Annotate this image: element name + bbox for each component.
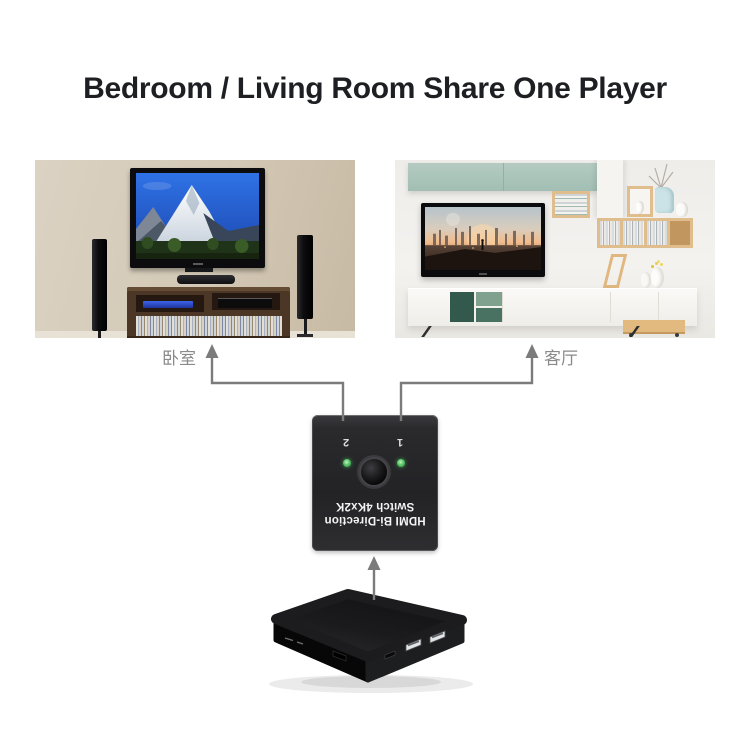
blue-pitcher <box>655 187 674 213</box>
page-title: Bedroom / Living Room Share One Player <box>0 72 750 106</box>
bedroom-label: 卧室 <box>120 344 196 369</box>
console-vases <box>639 260 675 288</box>
switch-face-text: HDMI Bi-Direction Switch 4Kx2K <box>312 499 438 527</box>
product-infographic: Bedroom / Living Room Share One Player <box>0 0 750 750</box>
leaning-wood-frame <box>603 254 627 288</box>
drawer-seam <box>610 292 611 322</box>
media-shelf <box>127 287 290 338</box>
right-tower-speaker <box>297 235 313 319</box>
cd-collection <box>136 316 282 336</box>
mountain-screen-image <box>136 173 259 259</box>
living-room-photo <box>395 160 715 338</box>
switch-title-line2: Switch 4Kx2K <box>312 499 438 513</box>
console-open-cubbies <box>450 292 502 322</box>
port-2-led-indicator <box>343 459 351 467</box>
decor-branches <box>641 160 685 188</box>
wall-column <box>597 160 623 218</box>
left-speaker-stand <box>98 331 101 338</box>
switch-toggle-button <box>359 457 389 487</box>
tv-brand-logo <box>479 273 487 275</box>
right-speaker-stand <box>304 319 307 335</box>
city-sunset-screen-image <box>425 207 541 270</box>
white-vase <box>636 201 644 214</box>
white-vase-small <box>641 272 651 288</box>
living-room-label: 客厅 <box>544 344 624 369</box>
bedroom-tv-stand <box>185 268 213 272</box>
bedroom-connector-line <box>212 356 343 421</box>
cube-shelf-vase <box>627 186 653 217</box>
living-room-connector-line <box>401 356 532 421</box>
port-1-led-indicator <box>397 459 405 467</box>
port-2-number: 2 <box>338 436 354 448</box>
cube-shelf-row <box>597 218 693 248</box>
small-white-vase <box>676 202 688 217</box>
shelf-cubby-right <box>212 293 280 310</box>
wall-cabinet-green <box>408 163 597 191</box>
right-speaker-base <box>297 334 313 337</box>
bedroom-photo <box>35 160 355 338</box>
bedroom-tv <box>130 168 265 268</box>
soundbar <box>177 275 235 284</box>
tv-brand-logo <box>193 263 203 265</box>
bedroom-arrowhead <box>206 344 219 358</box>
switch-title-line1: HDMI Bi-Direction <box>312 513 438 527</box>
shelf-cubby-left <box>136 295 204 312</box>
white-vase-large <box>651 267 664 288</box>
drawer-seam <box>502 292 503 322</box>
left-tower-speaker <box>92 239 107 331</box>
av-receiver <box>218 298 272 308</box>
hdmi-switch-device: 2 1 HDMI Bi-Direction Switch 4Kx2K <box>312 415 438 551</box>
drawer-seam <box>658 292 659 322</box>
living-room-arrowhead <box>526 344 539 358</box>
player-arrowhead <box>368 556 381 570</box>
living-room-tv <box>421 203 545 277</box>
cube-shelf-books <box>552 191 590 218</box>
media-player-box <box>253 581 493 711</box>
yellow-flowers <box>655 262 658 265</box>
port-1-number: 1 <box>392 436 408 448</box>
console-leg <box>421 326 446 337</box>
dvd-player <box>143 301 193 308</box>
